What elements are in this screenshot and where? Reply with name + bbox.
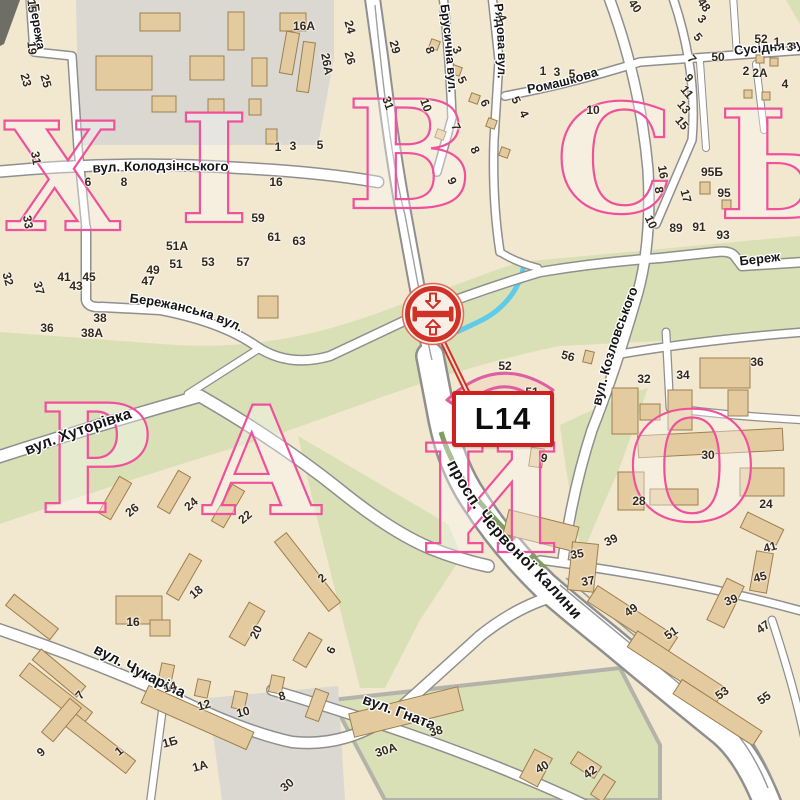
district-letter: Ь (718, 78, 800, 254)
district-letter: Р (39, 372, 152, 548)
district-letter: В (347, 68, 474, 244)
building (252, 58, 267, 86)
billboard-panel-bar (417, 311, 449, 317)
building (249, 99, 261, 115)
building (266, 129, 277, 144)
building (280, 13, 306, 31)
map-canvas: ХІВСЬРАЙО Бережа вул. Колодзінського Бру… (0, 0, 800, 800)
building (268, 675, 284, 694)
building (150, 620, 170, 636)
billboard-marker-icon[interactable] (403, 284, 464, 345)
building (140, 13, 180, 31)
map: ХІВСЬРАЙО Бережа вул. Колодзінського Бру… (0, 0, 800, 800)
building (228, 12, 244, 50)
building (700, 182, 710, 194)
building (152, 96, 176, 112)
district-letter: Х (4, 90, 121, 266)
district-letter: О (627, 380, 758, 556)
building (231, 691, 247, 710)
building (190, 56, 224, 80)
building (258, 296, 278, 318)
building (96, 56, 152, 90)
street-label-kolodzinskoho: вул. Колодзінського (92, 158, 229, 175)
district-letter: А (201, 374, 323, 550)
building (770, 58, 778, 66)
building (568, 542, 599, 592)
billboard-code-badge[interactable]: L14 (452, 391, 554, 447)
district-letter: С (555, 72, 674, 248)
building (194, 679, 210, 698)
building (756, 55, 764, 63)
